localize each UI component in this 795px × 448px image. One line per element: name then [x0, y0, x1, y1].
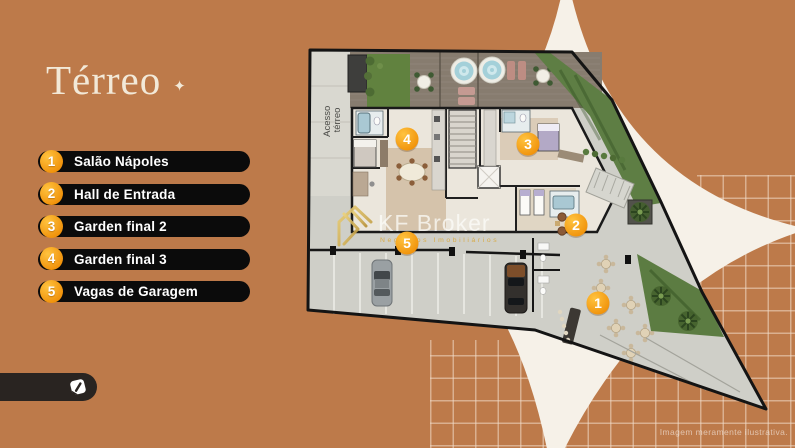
plan-marker-4: 4 [396, 128, 419, 153]
svg-text:3: 3 [524, 136, 532, 152]
legend-label: Salão Nápoles [38, 151, 250, 172]
legend-number-badge: 3 [40, 215, 63, 238]
legend-number-badge: 5 [40, 280, 63, 303]
page-title: Térreo ✦ [46, 60, 186, 101]
svg-text:2: 2 [572, 217, 580, 233]
plan-marker-2: 2 [565, 214, 588, 239]
plan-marker-5: 5 [396, 232, 419, 257]
legend-item-4: Garden final 34 [38, 249, 250, 270]
legend-number-badge: 1 [40, 150, 63, 173]
legend-item-1: Salão Nápoles1 [38, 151, 250, 172]
watermark-brand: KF Broker [378, 210, 491, 236]
legend-label: Garden final 2 [38, 216, 250, 237]
svg-text:1: 1 [594, 295, 602, 311]
legend-label: Garden final 3 [38, 249, 250, 270]
plan-marker-1: 1 [587, 292, 610, 317]
svg-text:5: 5 [403, 235, 411, 251]
disclaimer-text: Imagem meramente ilustrativa. [660, 427, 788, 437]
brand-badge [0, 373, 97, 401]
legend-label: Hall de Entrada [38, 184, 250, 205]
plan-marker-3: 3 [517, 133, 540, 158]
kf-badge-logo-icon [68, 377, 88, 397]
legend-number-badge: 2 [40, 182, 63, 205]
title-text: Térreo [46, 60, 161, 101]
svg-text:4: 4 [403, 131, 411, 147]
legend-number-badge: 4 [40, 247, 63, 270]
legend-item-5: Vagas de Garagem5 [38, 281, 250, 302]
legend-label: Vagas de Garagem [38, 281, 250, 302]
access-label: Acesso térreo [322, 103, 343, 137]
sparkle-icon: ✦ [173, 77, 186, 95]
legend-item-3: Garden final 23 [38, 216, 250, 237]
legend-item-2: Hall de Entrada2 [38, 184, 250, 205]
legend: Salão Nápoles1Hall de Entrada2Garden fin… [38, 151, 250, 302]
